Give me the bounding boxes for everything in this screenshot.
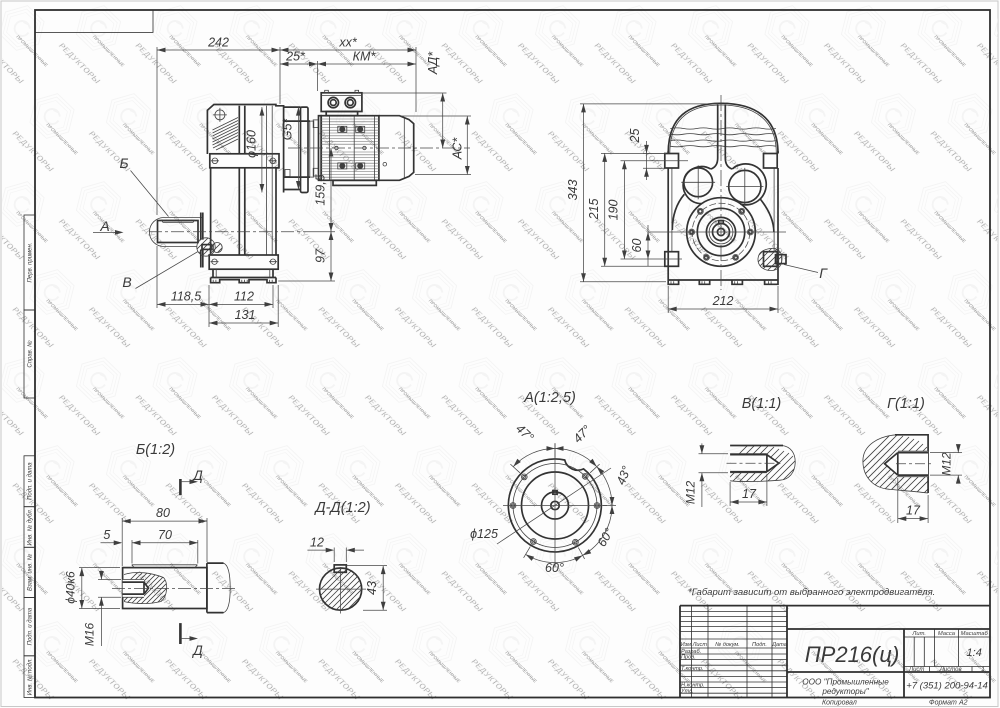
svg-text:xx*: xx* <box>338 36 358 50</box>
svg-text:Справ. №: Справ. № <box>27 340 34 368</box>
svg-text:АС*: АС* <box>451 137 465 161</box>
svg-text:Взам. инв. №: Взам. инв. № <box>27 553 34 591</box>
svg-text:Д-Д(1:2): Д-Д(1:2) <box>313 500 370 516</box>
svg-text:Подп.: Подп. <box>752 642 767 648</box>
svg-text:Б: Б <box>119 155 128 171</box>
svg-text:1:4: 1:4 <box>967 647 982 659</box>
svg-text:60: 60 <box>630 239 644 253</box>
svg-text:А2: А2 <box>958 700 968 707</box>
svg-text:ПР216(ц): ПР216(ц) <box>805 642 900 667</box>
svg-text:Лист: Лист <box>908 667 924 673</box>
svg-text:190: 190 <box>607 200 621 221</box>
svg-text:12: 12 <box>310 536 324 550</box>
svg-text:КМ*: КМ* <box>353 50 377 64</box>
svg-text:Б(1:2): Б(1:2) <box>136 442 175 458</box>
svg-text:Г(1:1): Г(1:1) <box>887 396 925 412</box>
svg-text:Инв. № дубл.: Инв. № дубл. <box>27 509 34 546</box>
svg-text:Подп. и дата: Подп. и дата <box>28 607 34 645</box>
svg-text:Лит.: Лит. <box>911 631 926 637</box>
svg-text:25: 25 <box>628 129 642 144</box>
svg-text:А(1:2,5): А(1:2,5) <box>523 390 576 406</box>
svg-text:*Габарит зависит от выбранного: *Габарит зависит от выбранного электродв… <box>688 587 935 598</box>
svg-text:Формат: Формат <box>929 700 957 707</box>
svg-text:80: 80 <box>156 506 170 520</box>
svg-text:343: 343 <box>566 180 580 201</box>
svg-text:215: 215 <box>587 199 601 221</box>
svg-text:242: 242 <box>207 36 229 50</box>
svg-text:М12: М12 <box>684 481 698 505</box>
svg-text:G5*: G5* <box>281 118 295 141</box>
svg-text:25*: 25* <box>285 50 306 64</box>
svg-text:+7 (351) 200-94-14: +7 (351) 200-94-14 <box>906 681 988 692</box>
svg-text:В: В <box>122 274 131 290</box>
svg-text:Т.контр.: Т.контр. <box>681 666 704 672</box>
svg-text:Д: Д <box>191 468 203 483</box>
svg-text:ϕ125: ϕ125 <box>470 527 498 541</box>
svg-text:43: 43 <box>365 581 379 595</box>
svg-text:5: 5 <box>103 528 110 542</box>
svg-text:Масса: Масса <box>938 631 956 637</box>
svg-text:Масштаб: Масштаб <box>961 631 989 637</box>
svg-text:118,5: 118,5 <box>171 290 201 304</box>
svg-text:ϕ40к6: ϕ40к6 <box>64 571 78 604</box>
svg-text:редукторы": редукторы" <box>821 687 869 696</box>
svg-text:Утв.: Утв. <box>680 689 694 695</box>
svg-text:Пров.: Пров. <box>681 655 696 661</box>
svg-text:17: 17 <box>906 504 921 518</box>
svg-text:Перв. примен.: Перв. примен. <box>28 243 34 283</box>
svg-text:М12: М12 <box>940 452 954 476</box>
svg-text:Д: Д <box>191 643 203 658</box>
svg-text:17: 17 <box>742 487 757 501</box>
svg-text:В(1:1): В(1:1) <box>742 396 782 412</box>
svg-text:131: 131 <box>235 308 256 322</box>
svg-text:Лист: Лист <box>692 642 708 648</box>
svg-text:М16: М16 <box>83 623 97 647</box>
svg-text:ООО "Промышленные: ООО "Промышленные <box>802 678 889 687</box>
svg-text:1: 1 <box>981 667 984 673</box>
svg-text:Изм: Изм <box>681 642 692 648</box>
svg-text:Инв. № подл.: Инв. № подл. <box>27 658 34 695</box>
svg-text:70: 70 <box>158 528 172 542</box>
svg-text:159,5: 159,5 <box>314 174 328 205</box>
svg-text:97: 97 <box>314 248 328 263</box>
svg-text:212: 212 <box>712 294 734 308</box>
svg-text:Копировал: Копировал <box>822 700 857 707</box>
svg-text:Подп. и дата: Подп. и дата <box>28 462 34 500</box>
svg-text:ϕ160: ϕ160 <box>245 130 259 158</box>
svg-text:112: 112 <box>234 290 254 304</box>
svg-text:Листов: Листов <box>939 667 962 673</box>
svg-text:А: А <box>99 218 109 234</box>
svg-text:№ докум.: № докум. <box>715 642 740 648</box>
svg-text:АД*: АД* <box>426 51 440 75</box>
svg-text:60°: 60° <box>545 561 564 575</box>
svg-text:Дата: Дата <box>771 642 787 648</box>
